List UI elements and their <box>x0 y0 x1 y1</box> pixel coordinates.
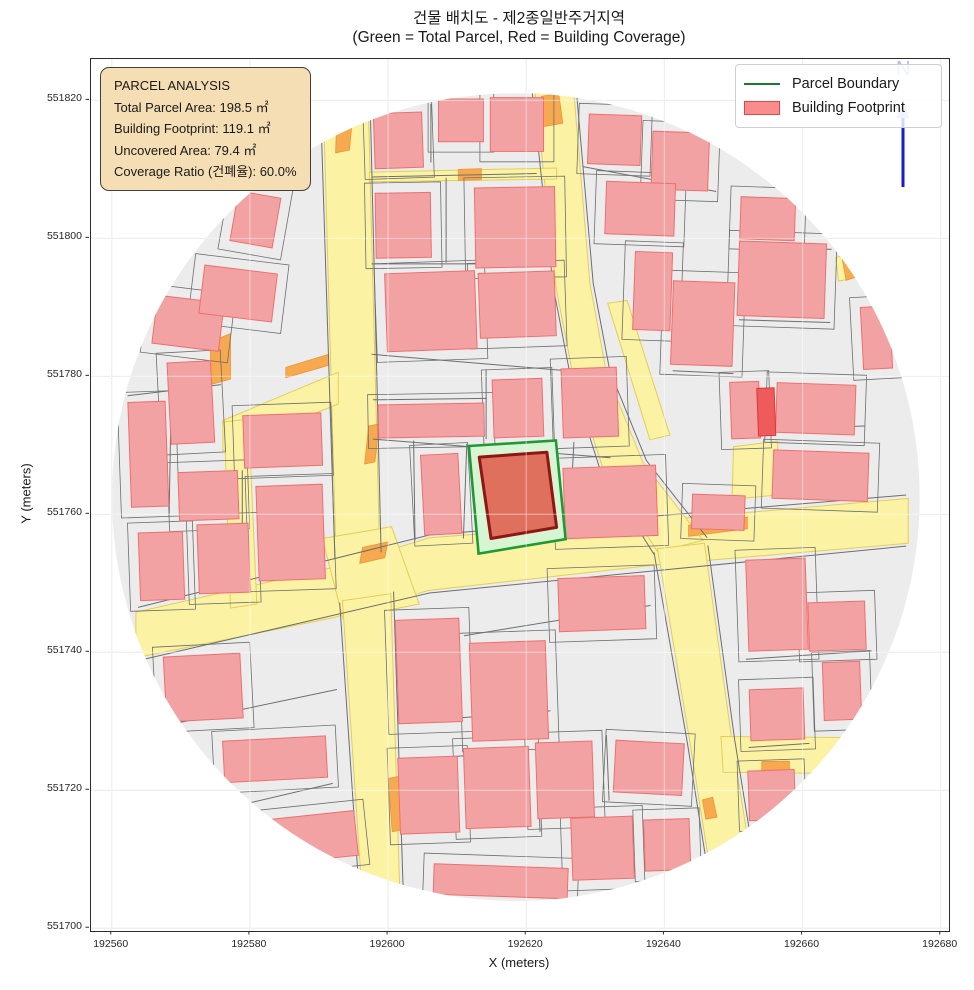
building-footprint <box>613 740 684 795</box>
building-footprint <box>469 641 548 742</box>
building-footprint <box>749 688 805 741</box>
info-line-total-area: Total Parcel Area: 198.5 ㎡ <box>114 97 297 119</box>
building-footprint <box>385 271 478 352</box>
y-tick-label: 551800 <box>16 230 82 242</box>
building-footprint <box>167 361 215 445</box>
chart-subtitle: (Green = Total Parcel, Red = Building Co… <box>90 29 948 47</box>
x-tick-label: 192560 <box>77 938 145 950</box>
building-footprint <box>651 131 710 191</box>
chart-title: 건물 배치도 - 제2종일반주거지역 <box>90 6 948 28</box>
legend-item-building-footprint: Building Footprint <box>744 96 933 120</box>
x-axis-label: X (meters) <box>90 955 948 970</box>
y-tick-label: 551720 <box>16 782 82 794</box>
x-tick-label: 192660 <box>768 938 836 950</box>
building-footprint <box>571 816 635 880</box>
road <box>721 737 877 774</box>
building-footprint <box>398 756 460 834</box>
building-footprint <box>740 197 796 241</box>
building-footprint <box>474 187 556 268</box>
y-axis-label: Y (meters) <box>19 439 34 549</box>
info-line-uncovered-area: Uncovered Area: 79.4 ㎡ <box>114 140 297 162</box>
building-footprint <box>138 532 185 601</box>
building-footprint <box>776 383 856 435</box>
x-tick-label: 192640 <box>629 938 697 950</box>
building-footprint <box>265 811 358 865</box>
building-footprint <box>178 471 239 521</box>
building-footprint <box>421 453 463 535</box>
building-footprint <box>822 661 861 720</box>
road-accent <box>541 94 562 127</box>
info-box-title: PARCEL ANALYSIS <box>114 75 297 97</box>
building-footprint <box>375 192 431 258</box>
building-footprint <box>243 413 323 468</box>
building-footprint <box>163 653 243 722</box>
y-tick-label: 551760 <box>16 506 82 518</box>
building-footprint-patch-swatch <box>744 101 780 115</box>
building-footprint <box>395 618 462 724</box>
building-footprint <box>633 252 673 331</box>
building-footprint <box>197 523 251 594</box>
building-footprint <box>748 770 796 821</box>
building-footprint <box>691 494 745 530</box>
x-tick-label: 192600 <box>353 938 421 950</box>
x-tick-label: 192680 <box>906 938 974 950</box>
y-tick-label: 551820 <box>16 92 82 104</box>
legend: Parcel Boundary Building Footprint <box>735 64 942 128</box>
building-footprint-highlight <box>757 388 776 436</box>
figure: 건물 배치도 - 제2종일반주거지역 (Green = Total Parcel… <box>0 0 974 990</box>
building-footprint <box>737 241 827 319</box>
x-tick-label: 192620 <box>491 938 559 950</box>
legend-item-parcel-boundary: Parcel Boundary <box>744 72 933 96</box>
parcel-boundary-line-swatch <box>744 83 780 86</box>
y-tick-label: 551740 <box>16 644 82 656</box>
building-footprint <box>808 601 866 651</box>
legend-label-building-footprint: Building Footprint <box>792 100 905 116</box>
building-footprint <box>256 484 326 581</box>
info-line-coverage-ratio: Coverage Ratio (건폐율): 60.0% <box>114 161 297 183</box>
building-footprint <box>535 741 594 819</box>
building-footprint <box>223 736 328 783</box>
subject-building <box>479 452 556 538</box>
building-footprint <box>492 378 544 438</box>
building-footprint <box>378 403 484 438</box>
building-footprint <box>433 864 568 899</box>
building-footprint <box>558 576 646 632</box>
y-tick-label: 551700 <box>16 920 82 932</box>
building-footprint <box>490 98 543 152</box>
x-tick-label: 192580 <box>215 938 283 950</box>
building-footprint <box>373 112 423 169</box>
building-footprint <box>671 281 735 367</box>
building-footprint <box>730 381 761 439</box>
building-footprint <box>230 191 281 248</box>
y-tick-label: 551780 <box>16 368 82 380</box>
building-footprint <box>588 114 642 166</box>
building-footprint <box>561 367 619 438</box>
building-footprint <box>439 99 484 142</box>
parcel-analysis-box: PARCEL ANALYSIS Total Parcel Area: 198.5… <box>100 67 311 191</box>
building-footprint <box>644 819 691 872</box>
legend-label-parcel-boundary: Parcel Boundary <box>792 76 899 92</box>
info-line-building-footprint: Building Footprint: 119.1 ㎡ <box>114 118 297 140</box>
building-footprint <box>563 465 658 539</box>
building-footprint <box>463 746 531 828</box>
building-footprint <box>605 181 676 236</box>
building-footprint <box>860 306 892 370</box>
building-footprint <box>478 271 556 338</box>
map-clip-group <box>112 87 920 909</box>
building-footprint <box>746 558 809 651</box>
road <box>732 441 778 499</box>
building-footprint <box>772 450 869 502</box>
building-footprint <box>199 265 278 322</box>
building-footprint <box>128 401 169 507</box>
